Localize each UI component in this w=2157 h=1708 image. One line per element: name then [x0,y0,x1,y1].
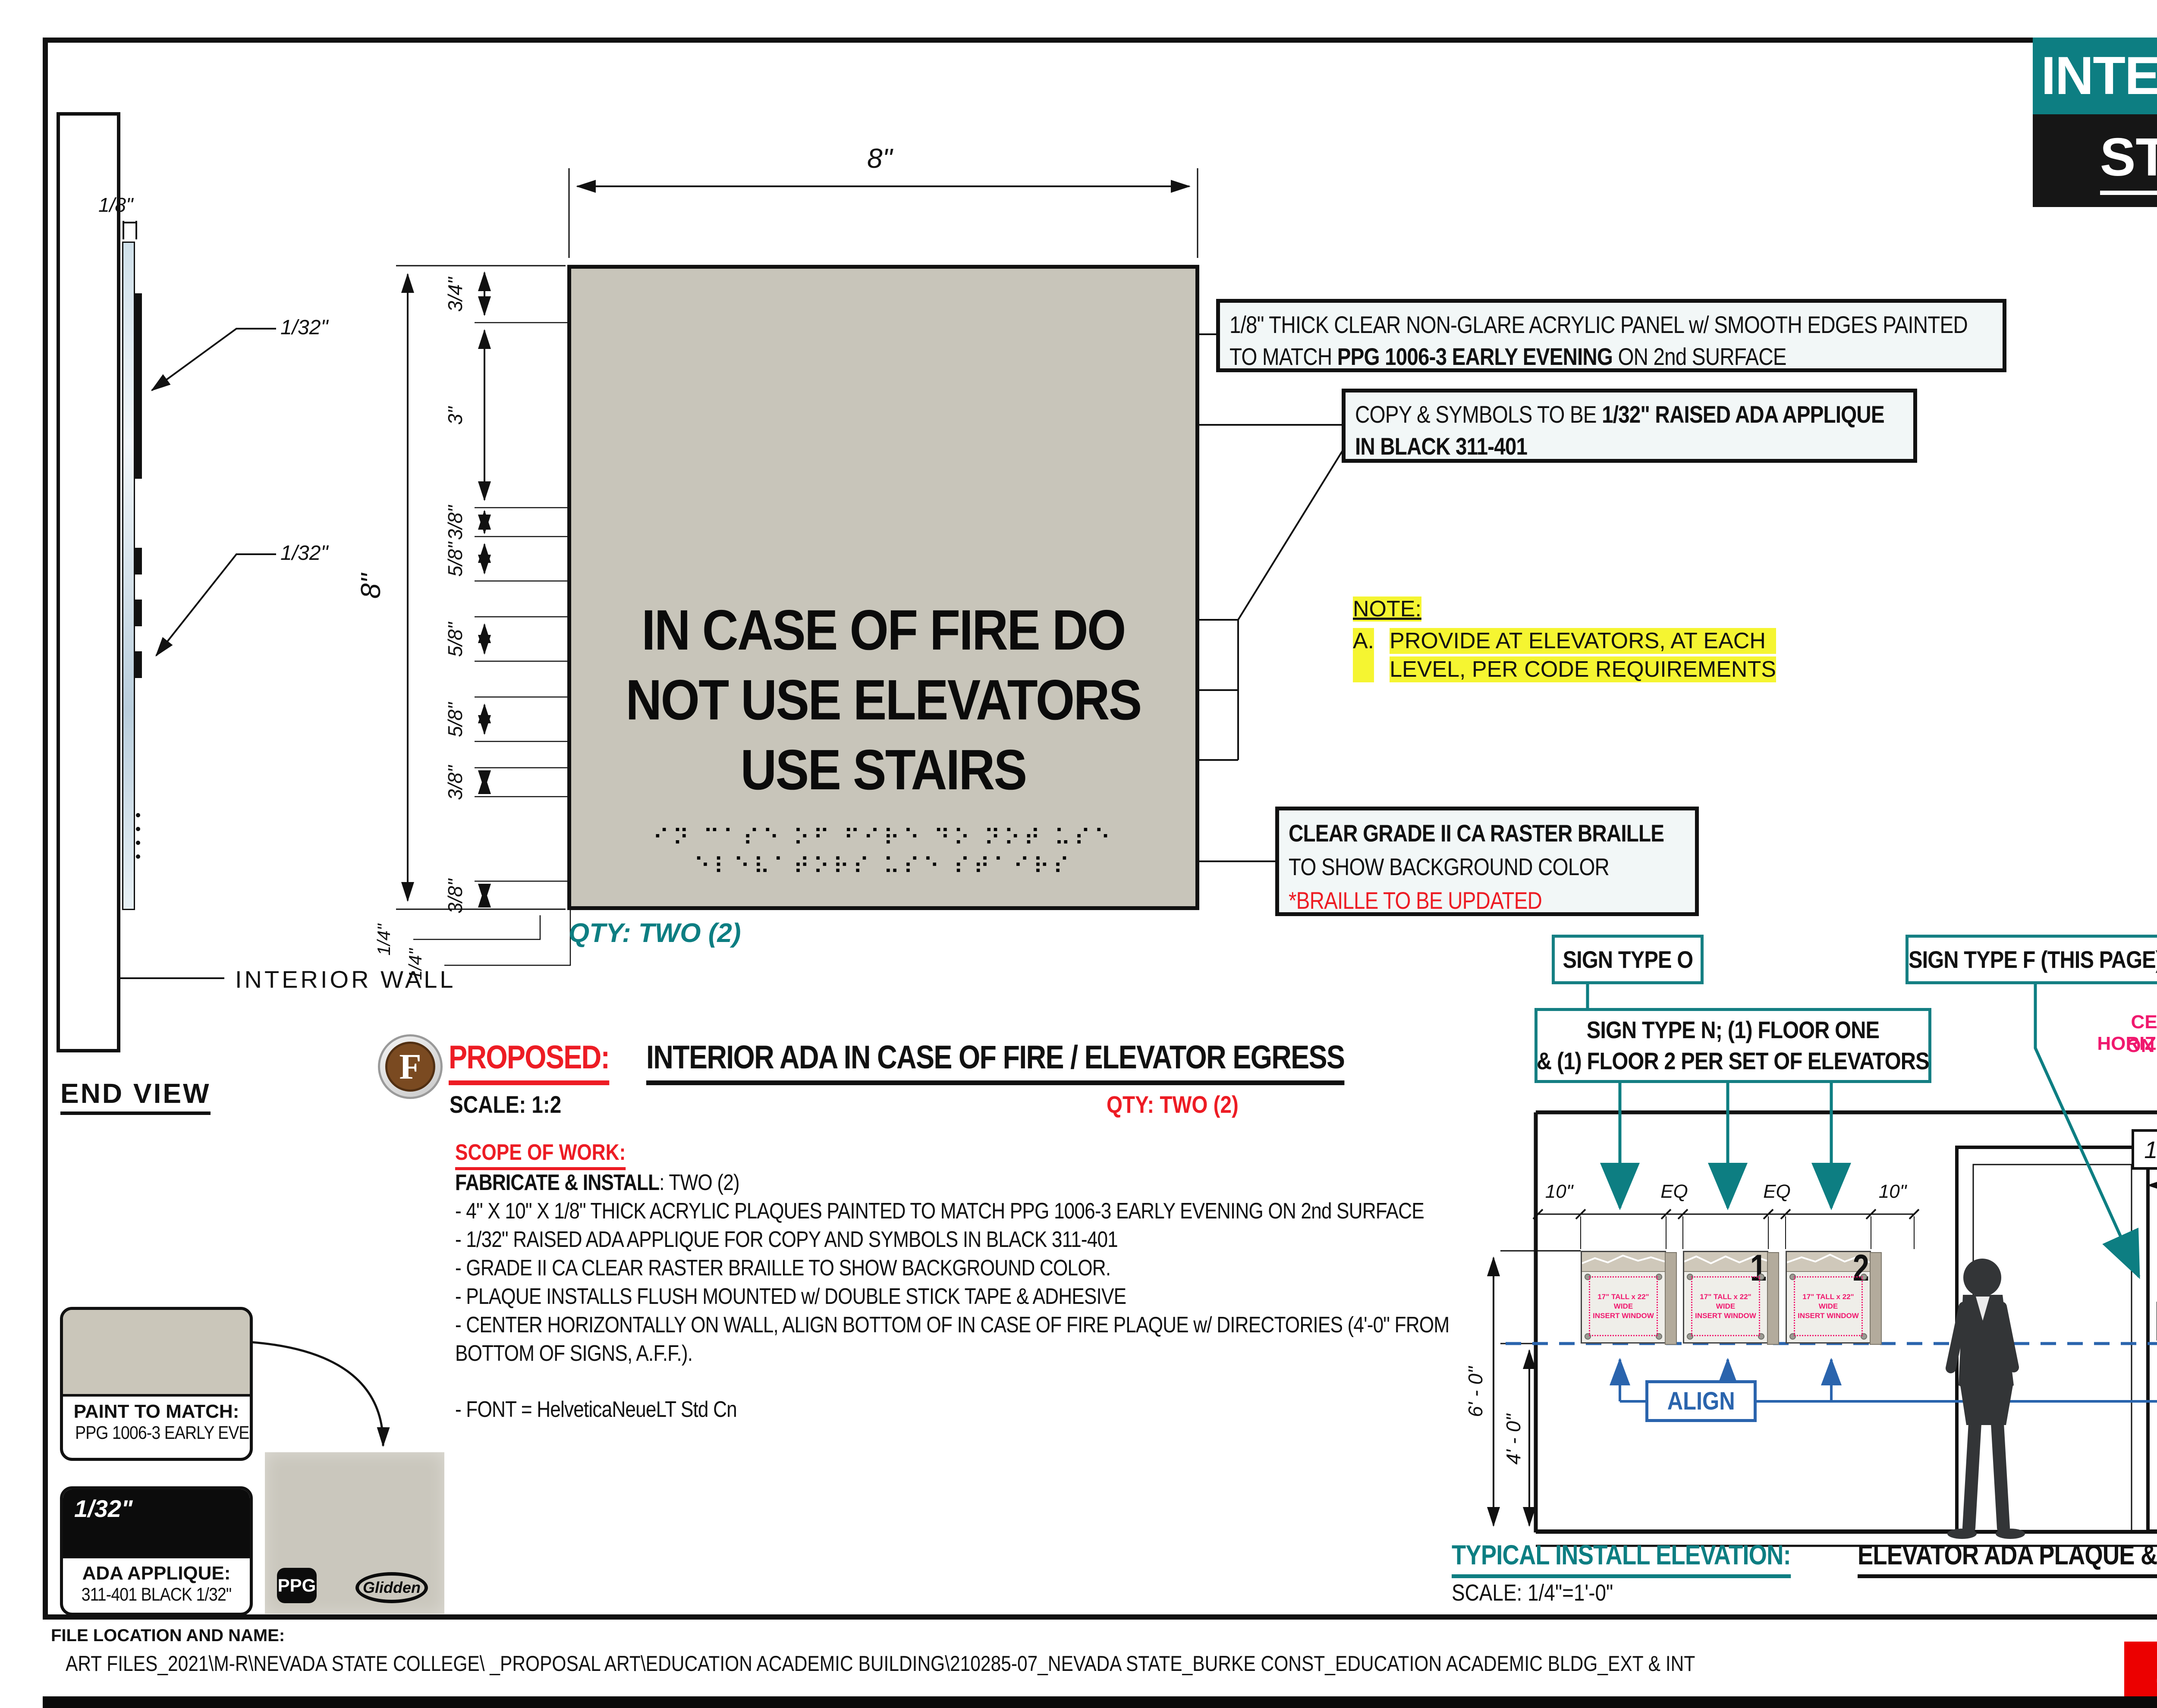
sign-braille-row1: ⠊⠝ ⠉⠁⠎⠑ ⠕⠋ ⠋⠊⠗⠑ ⠙⠕ ⠝⠕⠞ ⠥⠎⠑ [571,825,1195,851]
paint-swatch-card: PAINT TO MATCH: PPG 1006-3 EARLY EVENING [60,1307,253,1461]
panel-callout-box: 1/8" THICK CLEAR NON-GLARE ACRYLIC PANEL… [1216,299,2006,372]
elevation-title-black: ELEVATOR ADA PLAQUE & DIRECTORIES [1858,1539,2157,1578]
ppg-logo: PPG [277,1568,317,1603]
scope-item-4: - CENTER HORIZONTALLY ON WALL, ALIGN BOT… [455,1312,1449,1338]
centerline-symbol: ℄ [2146,1056,2157,1088]
category-band: INTERIOR [2033,38,2157,114]
applique-thickness: 1/32" [74,1495,133,1522]
sheet-category-block: INTERIOR ST: H [2033,38,2157,207]
scope-item-3: - PLAQUE INSTALLS FLUSH MOUNTED w/ DOUBL… [455,1284,1126,1309]
note-item-letter: A. [1353,628,1374,682]
note-item-line2: LEVEL, PER CODE REQUIREMENTS [1390,656,1776,682]
sign-type-o-label: SIGN TYPE O [1552,935,1704,984]
chain-dim-1: 3" [443,386,467,446]
sign-width-dim: 8" [867,142,892,174]
panel-callout-line2: TO MATCH PPG 1006-3 EARLY EVENING ON 2nd… [1229,341,1879,373]
quarter-dim-0: 1/4" [374,916,394,964]
sign-braille-row2: ⠑⠇⠑⠧⠁⠞⠕⠗⠎ ⠥⠎⠑ ⠎⠞⠁⠊⠗⠎ [571,854,1195,879]
end-view-acrylic-panel [122,242,135,910]
end-view-applique-line2 [135,600,142,626]
applique-swatch-color: 1/32" [63,1489,250,1558]
sign-type-n-line1: SIGN TYPE N; (1) FLOOR ONE [1587,1014,1879,1046]
chain-dim-6: 3/8" [443,753,467,813]
quarter-dim-1: 1/4" [405,941,426,988]
proposal-qty: QTY: TWO (2) [1107,1090,1239,1118]
glidden-logo: Glidden [355,1572,428,1603]
end-view-applique-line1 [135,548,142,575]
chain-dim-4: 5/8" [443,609,467,670]
file-location-label: FILE LOCATION AND NAME: [51,1626,285,1645]
paint-to-match-label: PAINT TO MATCH: [63,1401,250,1422]
sign-copy-line1: IN CASE OF FIRE DO [609,600,1158,660]
ada-applique-label: ADA APPLIQUE: [63,1563,250,1584]
insert-window-note: 17" TALL x 22" WIDEINSERT WINDOW [1691,1276,1760,1336]
paint-swatch-color [63,1310,250,1397]
directory-plaque-3: 2 17" TALL x 22" WIDEINSERT WINDOW [1786,1251,1871,1344]
elev-dim-eq1: EQ [1648,1181,1700,1203]
scope-item-0: - 4" X 10" X 1/8" THICK ACRYLIC PLAQUES … [455,1198,1424,1224]
align-callout-box: ALIGN [1645,1380,1757,1422]
directory-plaque-2: 1 17" TALL x 22" WIDEINSERT WINDOW [1683,1251,1768,1344]
braille-callout-box: CLEAR GRADE II CA RASTER BRAILLE TO SHOW… [1275,807,1699,916]
sign-type-f-label: SIGN TYPE F (THIS PAGE) [1905,935,2157,984]
elev-dim-10a: 10" [1533,1181,1585,1203]
plaque-side-return [1665,1252,1677,1345]
scope-item-1: - 1/32" RAISED ADA APPLIQUE FOR COPY AND… [455,1227,1118,1253]
dim-1-8-box: 1'-8" [2132,1129,2157,1170]
elev-dim-6-0: 6' - 0" [1464,1344,1487,1439]
category-label: INTERIOR [2041,45,2157,107]
paint-to-match-value: PPG 1006-3 EARLY EVENING [75,1422,238,1444]
scope-of-work-label: SCOPE OF WORK: [455,1140,626,1170]
sign-copy-line2: NOT USE ELEVATORS [609,670,1158,730]
sign-copy-line3: USE STAIRS [609,740,1158,800]
end-view-wall [57,112,120,1052]
end-view-title: END VIEW [60,1078,211,1115]
plaque-artwork-band [1582,1252,1665,1272]
on-wall-note: ON WALL [2071,1035,2157,1057]
insert-window-note: 17" TALL x 22" WIDEINSERT WINDOW [1794,1276,1863,1336]
proposal-title-row: PROPOSED: INTERIOR ADA IN CASE OF FIRE /… [449,1039,1468,1085]
chain-dim-5: 5/8" [443,690,467,750]
elevation-title-teal: TYPICAL INSTALL ELEVATION: [1452,1539,1791,1578]
bottom-bar [43,1696,2157,1708]
elev-dim-10b: 10" [1867,1181,1918,1203]
ada-applique-value: 311-401 BLACK 1/32" [75,1584,238,1605]
plaque-side-return [1767,1252,1779,1345]
note-item-line1: PROVIDE AT ELEVATORS, AT EACH [1390,628,1776,654]
scope-font-note: - FONT = HelveticaNeueLT Std Cn [455,1397,737,1422]
sign-type-prefix: ST: [2100,127,2157,195]
scope-item-2: - GRADE II CA CLEAR RASTER BRAILLE TO SH… [455,1255,1110,1281]
sign-type-band: ST: H [2033,114,2157,207]
braille-callout-line2: TO SHOW BACKGROUND COLOR [1289,850,1626,884]
sign-type-badge: F [378,1034,443,1099]
plaque-side-return [1870,1252,1882,1345]
badge-letter: F [385,1042,435,1092]
sign-qty-label: QTY: TWO (2) [569,918,741,948]
applique-dim-label-1: 1/32" [280,316,328,339]
elevation-scale: SCALE: 1/4"=1'-0" [1452,1579,1613,1606]
chain-dim-0: 3/4" [443,264,467,325]
end-view-applique-icon [135,293,142,479]
panel-callout-line1: 1/8" THICK CLEAR NON-GLARE ACRYLIC PANEL… [1229,309,1879,341]
elev-dim-4-0-left: 4' - 0" [1502,1392,1525,1487]
copy-callout-line1: COPY & SYMBOLS TO BE 1/32" RAISED ADA AP… [1355,399,1821,430]
proposal-scale: SCALE: 1:2 [450,1090,561,1118]
note-block: NOTE: A. PROVIDE AT ELEVATORS, AT EACH L… [1353,596,1776,682]
note-label: NOTE: [1353,597,1421,622]
file-path: ART FILES_2021\M-R\NEVADA STATE COLLEGE\… [66,1651,1695,1676]
directory-plaque-1: 17" TALL x 22" WIDEINSERT WINDOW [1581,1251,1666,1344]
job-number-badge: 210285 [2124,1642,2157,1697]
copy-callout-box: COPY & SYMBOLS TO BE 1/32" RAISED ADA AP… [1342,389,1917,463]
sign-type-n-line2: & (1) FLOOR 2 PER SET OF ELEVATORS [1537,1046,1929,1077]
insert-window-note: 17" TALL x 22" WIDEINSERT WINDOW [1589,1276,1658,1336]
applique-swatch-card: 1/32" ADA APPLIQUE: 311-401 BLACK 1/32" [60,1486,253,1616]
paint-chip-sample: PPG Glidden [265,1452,444,1614]
sign-type-n-label: SIGN TYPE N; (1) FLOOR ONE & (1) FLOOR 2… [1534,1008,1931,1083]
end-view-applique-line3 [135,651,142,678]
elevation-title-row: TYPICAL INSTALL ELEVATION: ELEVATOR ADA … [1452,1539,2157,1578]
braille-callout-line3: *BRAILLE TO BE UPDATED [1289,884,1626,917]
thickness-dim-label: 1/8" [98,193,133,217]
chain-dim-7: 3/8" [443,866,467,926]
applique-dim-label-2: 1/32" [280,541,328,565]
chain-dim-3: 5/8" [443,529,467,590]
proposal-title: INTERIOR ADA IN CASE OF FIRE / ELEVATOR … [646,1039,1344,1085]
braille-callout-line1: CLEAR GRADE II CA RASTER BRAILLE [1289,816,1626,850]
ada-sign-face: IN CASE OF FIRE DO NOT USE ELEVATORS USE… [567,265,1199,910]
elev-dim-eq2: EQ [1751,1181,1803,1203]
scope-item-5: BOTTOM OF SIGNS, A.F.F.). [455,1341,692,1366]
sign-height-dim: 8" [355,574,387,599]
scope-intro: FABRICATE & INSTALL: TWO (2) [455,1170,739,1196]
drawing-sheet: INTERIOR ST: H COMPANY NAME: N S NEVADA … [0,0,2157,1708]
proposed-label: PROPOSED: [449,1039,609,1085]
copy-callout-line2: IN BLACK 311-401 [1355,430,1821,462]
